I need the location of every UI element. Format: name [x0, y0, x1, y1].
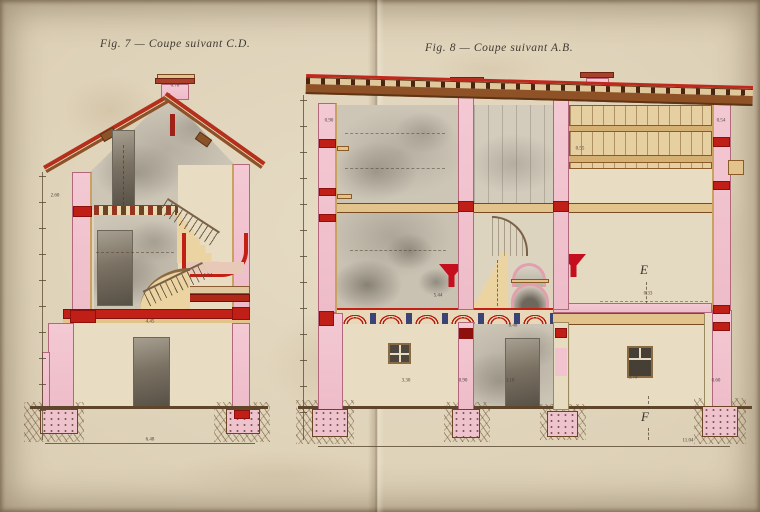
- dimension-label: 3.30: [402, 379, 411, 384]
- dimension-labels-layer: 0.782.601.544.456.480.900.540.555.440.33…: [0, 0, 760, 512]
- dimension-label: 3.10: [506, 379, 515, 384]
- dimension-label: 0.78: [171, 84, 180, 89]
- dimension-label: 4.45: [146, 320, 155, 325]
- dimension-label: 6.48: [146, 438, 155, 443]
- dimension-label: 0.33: [644, 292, 653, 297]
- dimension-label: 11.04: [682, 439, 693, 444]
- architectural-plate: Fig. 7 — Coupe suivant C.D.: [0, 0, 760, 512]
- dimension-label: 0.90: [325, 119, 334, 124]
- dimension-label: 5.44: [434, 294, 443, 299]
- dimension-label: 0.90: [459, 379, 468, 384]
- dimension-label: 0.60: [712, 379, 721, 384]
- dimension-label: 2.60: [51, 194, 60, 199]
- dimension-label: 0.55: [576, 147, 585, 152]
- dimension-label: 8.48: [509, 324, 518, 329]
- dimension-label: 1.54: [204, 274, 213, 279]
- dimension-label: 3.70: [629, 376, 638, 381]
- dimension-label: 0.54: [717, 119, 726, 124]
